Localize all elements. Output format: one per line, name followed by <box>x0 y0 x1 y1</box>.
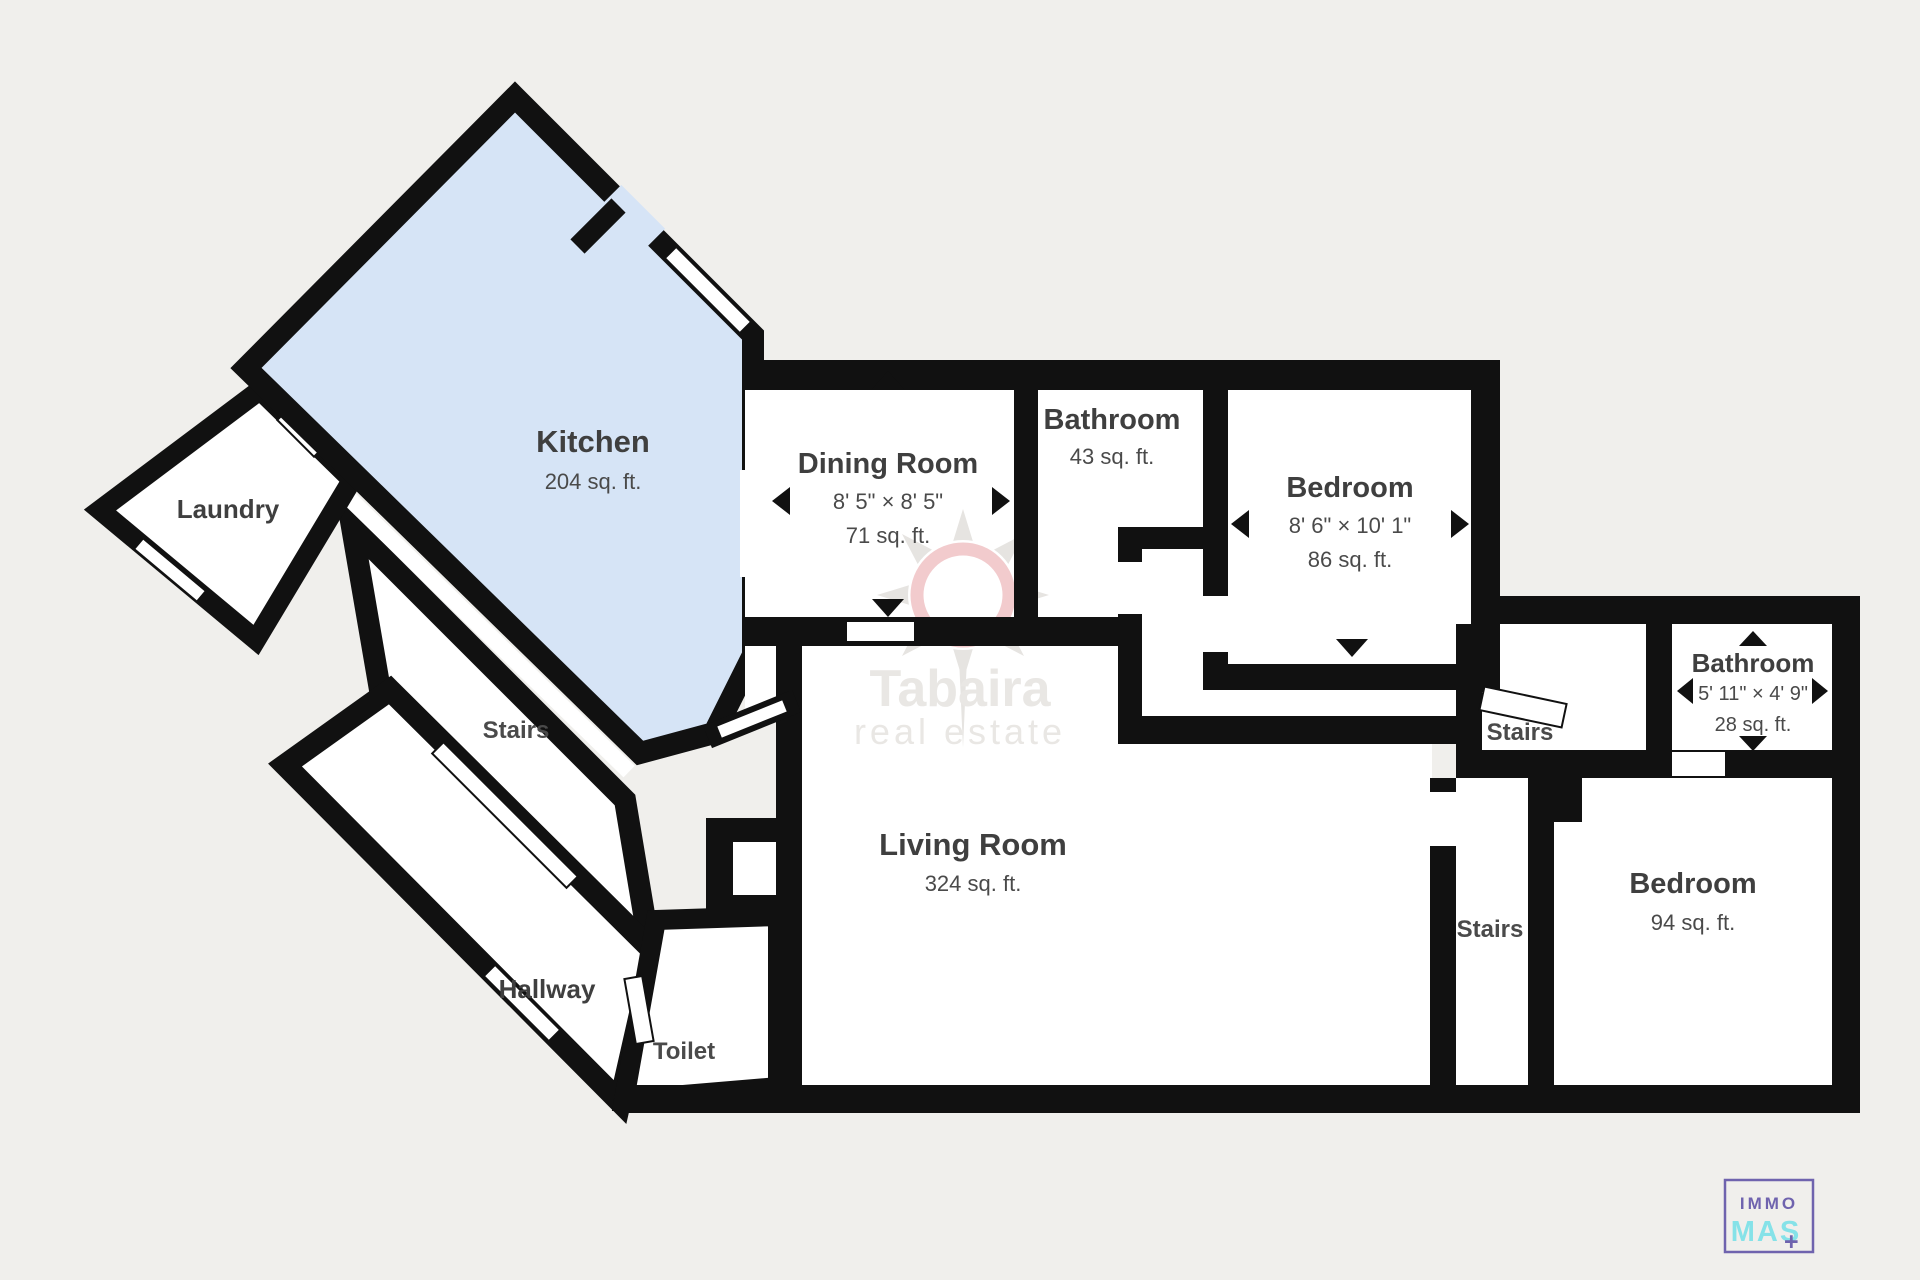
bedroom-right-label: Bedroom <box>1629 868 1756 900</box>
bedroom-right-area: 94 sq. ft. <box>1651 910 1735 935</box>
laundry-label: Laundry <box>177 494 280 524</box>
living-area: 324 sq. ft. <box>925 871 1022 896</box>
bathroom-right-label: Bathroom <box>1692 648 1815 678</box>
bedroom-top-dims: 8' 6" × 10' 1" <box>1289 513 1412 538</box>
bedroom-top-door <box>1200 596 1231 652</box>
dining-label: Dining Room <box>798 448 978 480</box>
logo-plus-icon: + <box>1784 1228 1799 1256</box>
living-niche <box>733 842 776 895</box>
kitchen-area: 204 sq. ft. <box>545 469 642 494</box>
stairs-left-label: Stairs <box>483 717 550 744</box>
bedroom-top-label: Bedroom <box>1286 472 1413 504</box>
dining-window <box>846 621 915 642</box>
watermark-line2: real estate <box>854 711 1066 752</box>
dining-kitchen-door <box>740 470 768 577</box>
bedroom-top-area: 86 sq. ft. <box>1308 547 1392 572</box>
bathroom-top-label: Bathroom <box>1044 404 1181 436</box>
watermark-line1: Tabaira <box>869 660 1051 718</box>
stairs-lower-door <box>1427 792 1459 846</box>
floor-plan-page: Tabaira real estate Kitchen 204 sq. ft. … <box>0 0 1920 1280</box>
dining-area: 71 sq. ft. <box>846 523 930 548</box>
bathroom-right-dims: 5' 11" × 4' 9" <box>1698 683 1808 705</box>
bathroom-top-area: 43 sq. ft. <box>1070 444 1154 469</box>
living-label: Living Room <box>879 827 1067 862</box>
stairs-lower-right-label: Stairs <box>1457 916 1524 943</box>
bathroom-right-area: 28 sq. ft. <box>1715 714 1792 736</box>
logo-immo-text: IMMO <box>1740 1194 1798 1213</box>
bathroom-right-door <box>1672 752 1725 776</box>
dining-dims: 8' 5" × 8' 5" <box>833 489 943 514</box>
floor-plan-drawing: Tabaira real estate Kitchen 204 sq. ft. … <box>0 0 1920 1280</box>
toilet-label: Toilet <box>653 1038 715 1065</box>
stairs-upper-right-label: Stairs <box>1487 719 1554 746</box>
kitchen-label: Kitchen <box>536 424 650 459</box>
hall-door <box>1115 562 1145 614</box>
hallway-label: Hallway <box>499 974 596 1004</box>
